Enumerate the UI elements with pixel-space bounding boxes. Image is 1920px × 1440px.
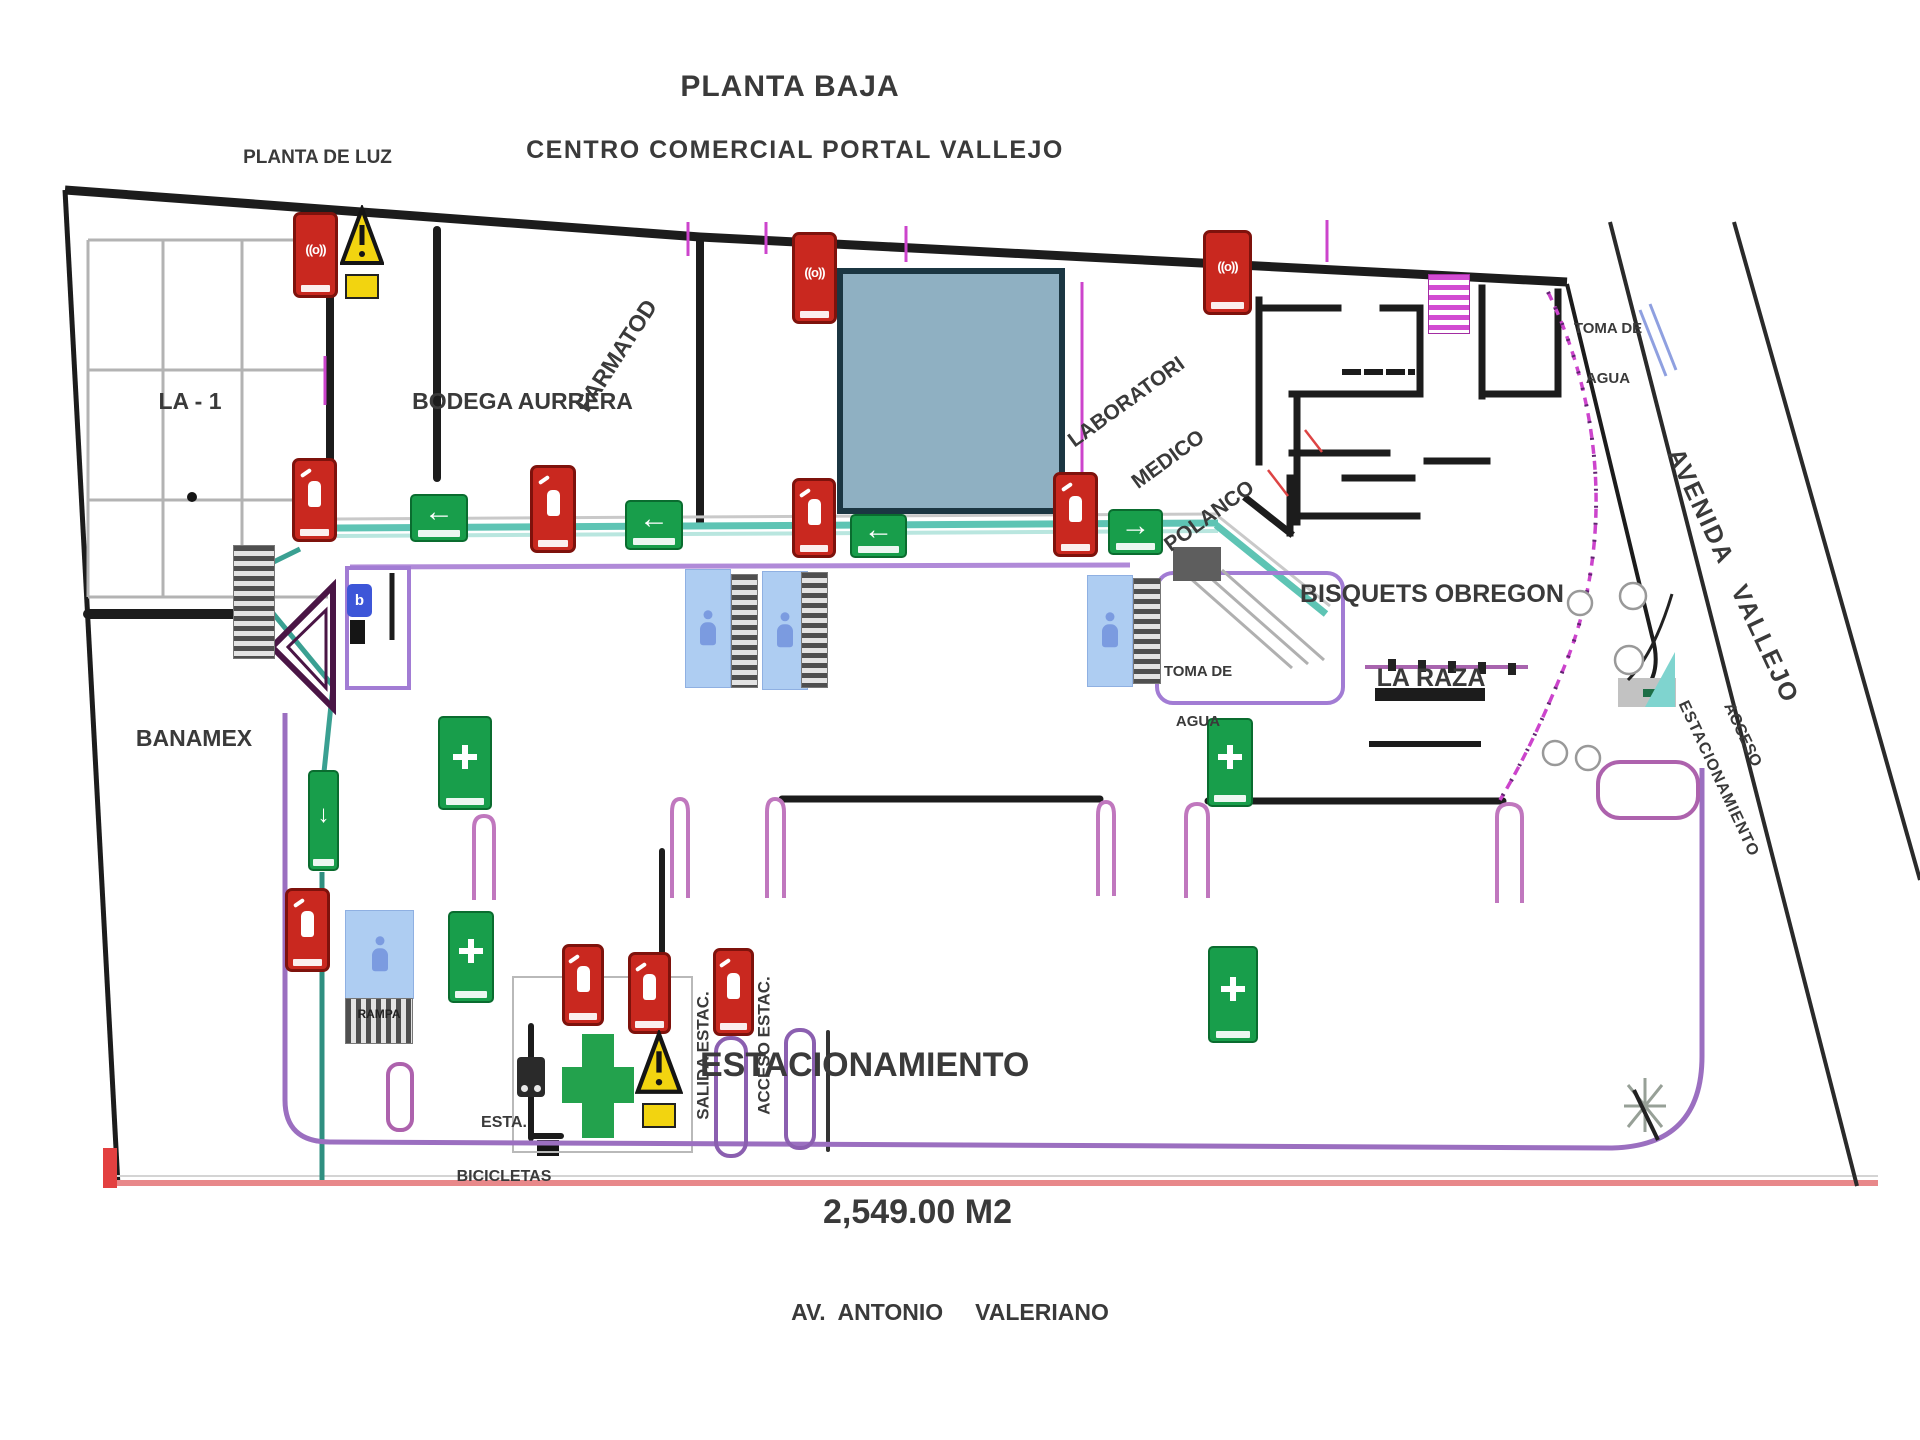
sign-caption-bar <box>569 1013 596 1020</box>
extinguisher-icon <box>533 468 573 538</box>
warning-caption <box>345 274 379 299</box>
zone-label-planta-de-luz: PLANTA DE LUZ <box>240 147 395 168</box>
bicis-line1: ESTA. <box>445 1114 563 1132</box>
meeting-point-icon <box>450 913 492 989</box>
warning-icon <box>635 1030 683 1096</box>
zone-label-toma-agua-mid: TOMA DE AGUA <box>1158 630 1238 764</box>
siren-icon: ((o)) <box>795 235 834 309</box>
extinguisher-sign <box>628 952 671 1034</box>
sign-caption-bar <box>418 530 459 537</box>
extinguisher-icon <box>795 481 833 543</box>
tree-icon <box>1624 1078 1666 1140</box>
floor-plan-canvas: b ((o)) ((o)) ((o)) ← ← ← → ↓ <box>0 0 1920 1440</box>
driveway-entrance <box>1543 583 1676 770</box>
sign-caption-bar <box>1214 795 1246 802</box>
corner-marker <box>103 1148 117 1188</box>
parking-area-value: 2,549.00 M2 <box>700 1188 1012 1237</box>
extinguisher-sign <box>562 944 604 1026</box>
toma-line1: TOMA DE <box>1158 664 1238 681</box>
column-dot <box>187 492 197 502</box>
warning-caption <box>642 1103 676 1128</box>
extinguisher-icon <box>288 891 327 957</box>
meeting-point-sign <box>448 911 494 1003</box>
sign-caption-bar <box>1216 1031 1251 1038</box>
electrical-panel-icon: b <box>347 584 372 617</box>
zone-label-banamex: BANAMEX <box>118 726 270 752</box>
restroom-block <box>1087 575 1133 687</box>
bisquets-line1: BISQUETS OBREGON <box>1300 580 1562 608</box>
sign-caption-bar <box>455 991 487 998</box>
parking-name: ESTACIONAMIENTO <box>700 1041 1012 1090</box>
sign-caption-bar <box>1061 544 1091 551</box>
alarm-siren-sign: ((o)) <box>293 212 338 298</box>
exit-route-sign: ← <box>850 514 907 558</box>
warning-icon <box>340 205 384 267</box>
extinguisher-icon <box>295 461 334 527</box>
sign-caption-bar <box>635 1021 663 1028</box>
ramp-label: RAMPA <box>345 1008 413 1021</box>
zone-label-la1: LA - 1 <box>135 389 245 415</box>
siren-icon: ((o)) <box>1206 233 1249 300</box>
restroom-block <box>685 569 731 688</box>
meeting-point-icon <box>1210 948 1256 1029</box>
equipment-block <box>350 620 365 644</box>
sign-caption-bar <box>446 798 484 805</box>
exit-route-sign: ← <box>410 494 468 542</box>
sign-caption-bar <box>1211 302 1244 309</box>
extinguisher-sign <box>292 458 337 542</box>
restroom-block <box>345 910 414 999</box>
extinguisher-icon <box>631 955 668 1019</box>
lane-label-acceso: ACCESO ESTAC. <box>754 921 773 1171</box>
lane-label-salida: SALIDA ESTAC. <box>693 931 712 1181</box>
alarm-siren-sign: ((o)) <box>1203 230 1252 315</box>
escalator-stripes <box>1428 274 1470 334</box>
la1-grid <box>88 240 328 597</box>
meeting-point-sign <box>438 716 492 810</box>
toma-line2: AGUA <box>1158 714 1238 731</box>
bicis-line2: BICICLETAS <box>445 1168 563 1186</box>
restroom-icon <box>698 610 718 646</box>
street-label-av-antonio-valeriano: AV. ANTONIO VALERIANO <box>735 1300 1165 1326</box>
zone-label-bicicletas: ESTA. BICICLETAS <box>445 1078 563 1221</box>
stairs-icon <box>233 545 275 659</box>
anchor-store-block <box>837 268 1065 514</box>
warning-triangle-sign <box>340 205 384 299</box>
extinguisher-sign <box>530 465 576 553</box>
sign-caption-bar <box>293 959 323 966</box>
restroom-icon <box>775 612 795 648</box>
arrow-left-icon: ← <box>852 516 905 544</box>
arrow-left-icon: ← <box>627 502 681 536</box>
restroom-icon <box>1100 612 1120 648</box>
sign-caption-bar <box>301 285 331 292</box>
first-aid-cross-icon <box>562 1034 634 1138</box>
zone-label-parking: ESTACIONAMIENTO 2,549.00 M2 <box>700 942 1012 1336</box>
meeting-point-sign <box>1208 946 1258 1043</box>
sign-caption-bar <box>800 545 829 552</box>
bisquets-line2: LA RAZA <box>1300 664 1562 692</box>
sign-caption-bar <box>800 311 830 318</box>
extinguisher-sign <box>792 478 836 558</box>
toma-line1: TOMA DE <box>1552 321 1664 338</box>
restroom-icon <box>370 936 390 972</box>
warning-triangle-sign <box>635 1030 683 1128</box>
siren-icon: ((o)) <box>296 215 335 283</box>
page-subtitle: CENTRO COMERCIAL PORTAL VALLEJO <box>520 136 1070 164</box>
stairs-icon <box>801 572 828 688</box>
alarm-siren-sign: ((o)) <box>792 232 837 324</box>
exit-route-sign: ↓ <box>308 770 339 871</box>
page-title: PLANTA BAJA <box>600 70 980 104</box>
sign-caption-bar <box>858 546 898 553</box>
sign-caption-bar <box>313 859 334 866</box>
arrow-down-icon: ↓ <box>310 772 337 857</box>
arrow-left-icon: ← <box>412 496 466 528</box>
sign-caption-bar <box>300 529 330 536</box>
sign-caption-bar <box>538 540 568 547</box>
exit-route-sign: ← <box>625 500 683 550</box>
stairs-icon <box>731 574 758 688</box>
sign-caption-bar <box>633 538 674 545</box>
extinguisher-icon <box>565 947 601 1011</box>
meeting-point-icon <box>440 718 490 796</box>
zone-label-bisquets: BISQUETS OBREGON LA RAZA <box>1300 524 1562 748</box>
extinguisher-sign <box>285 888 330 972</box>
